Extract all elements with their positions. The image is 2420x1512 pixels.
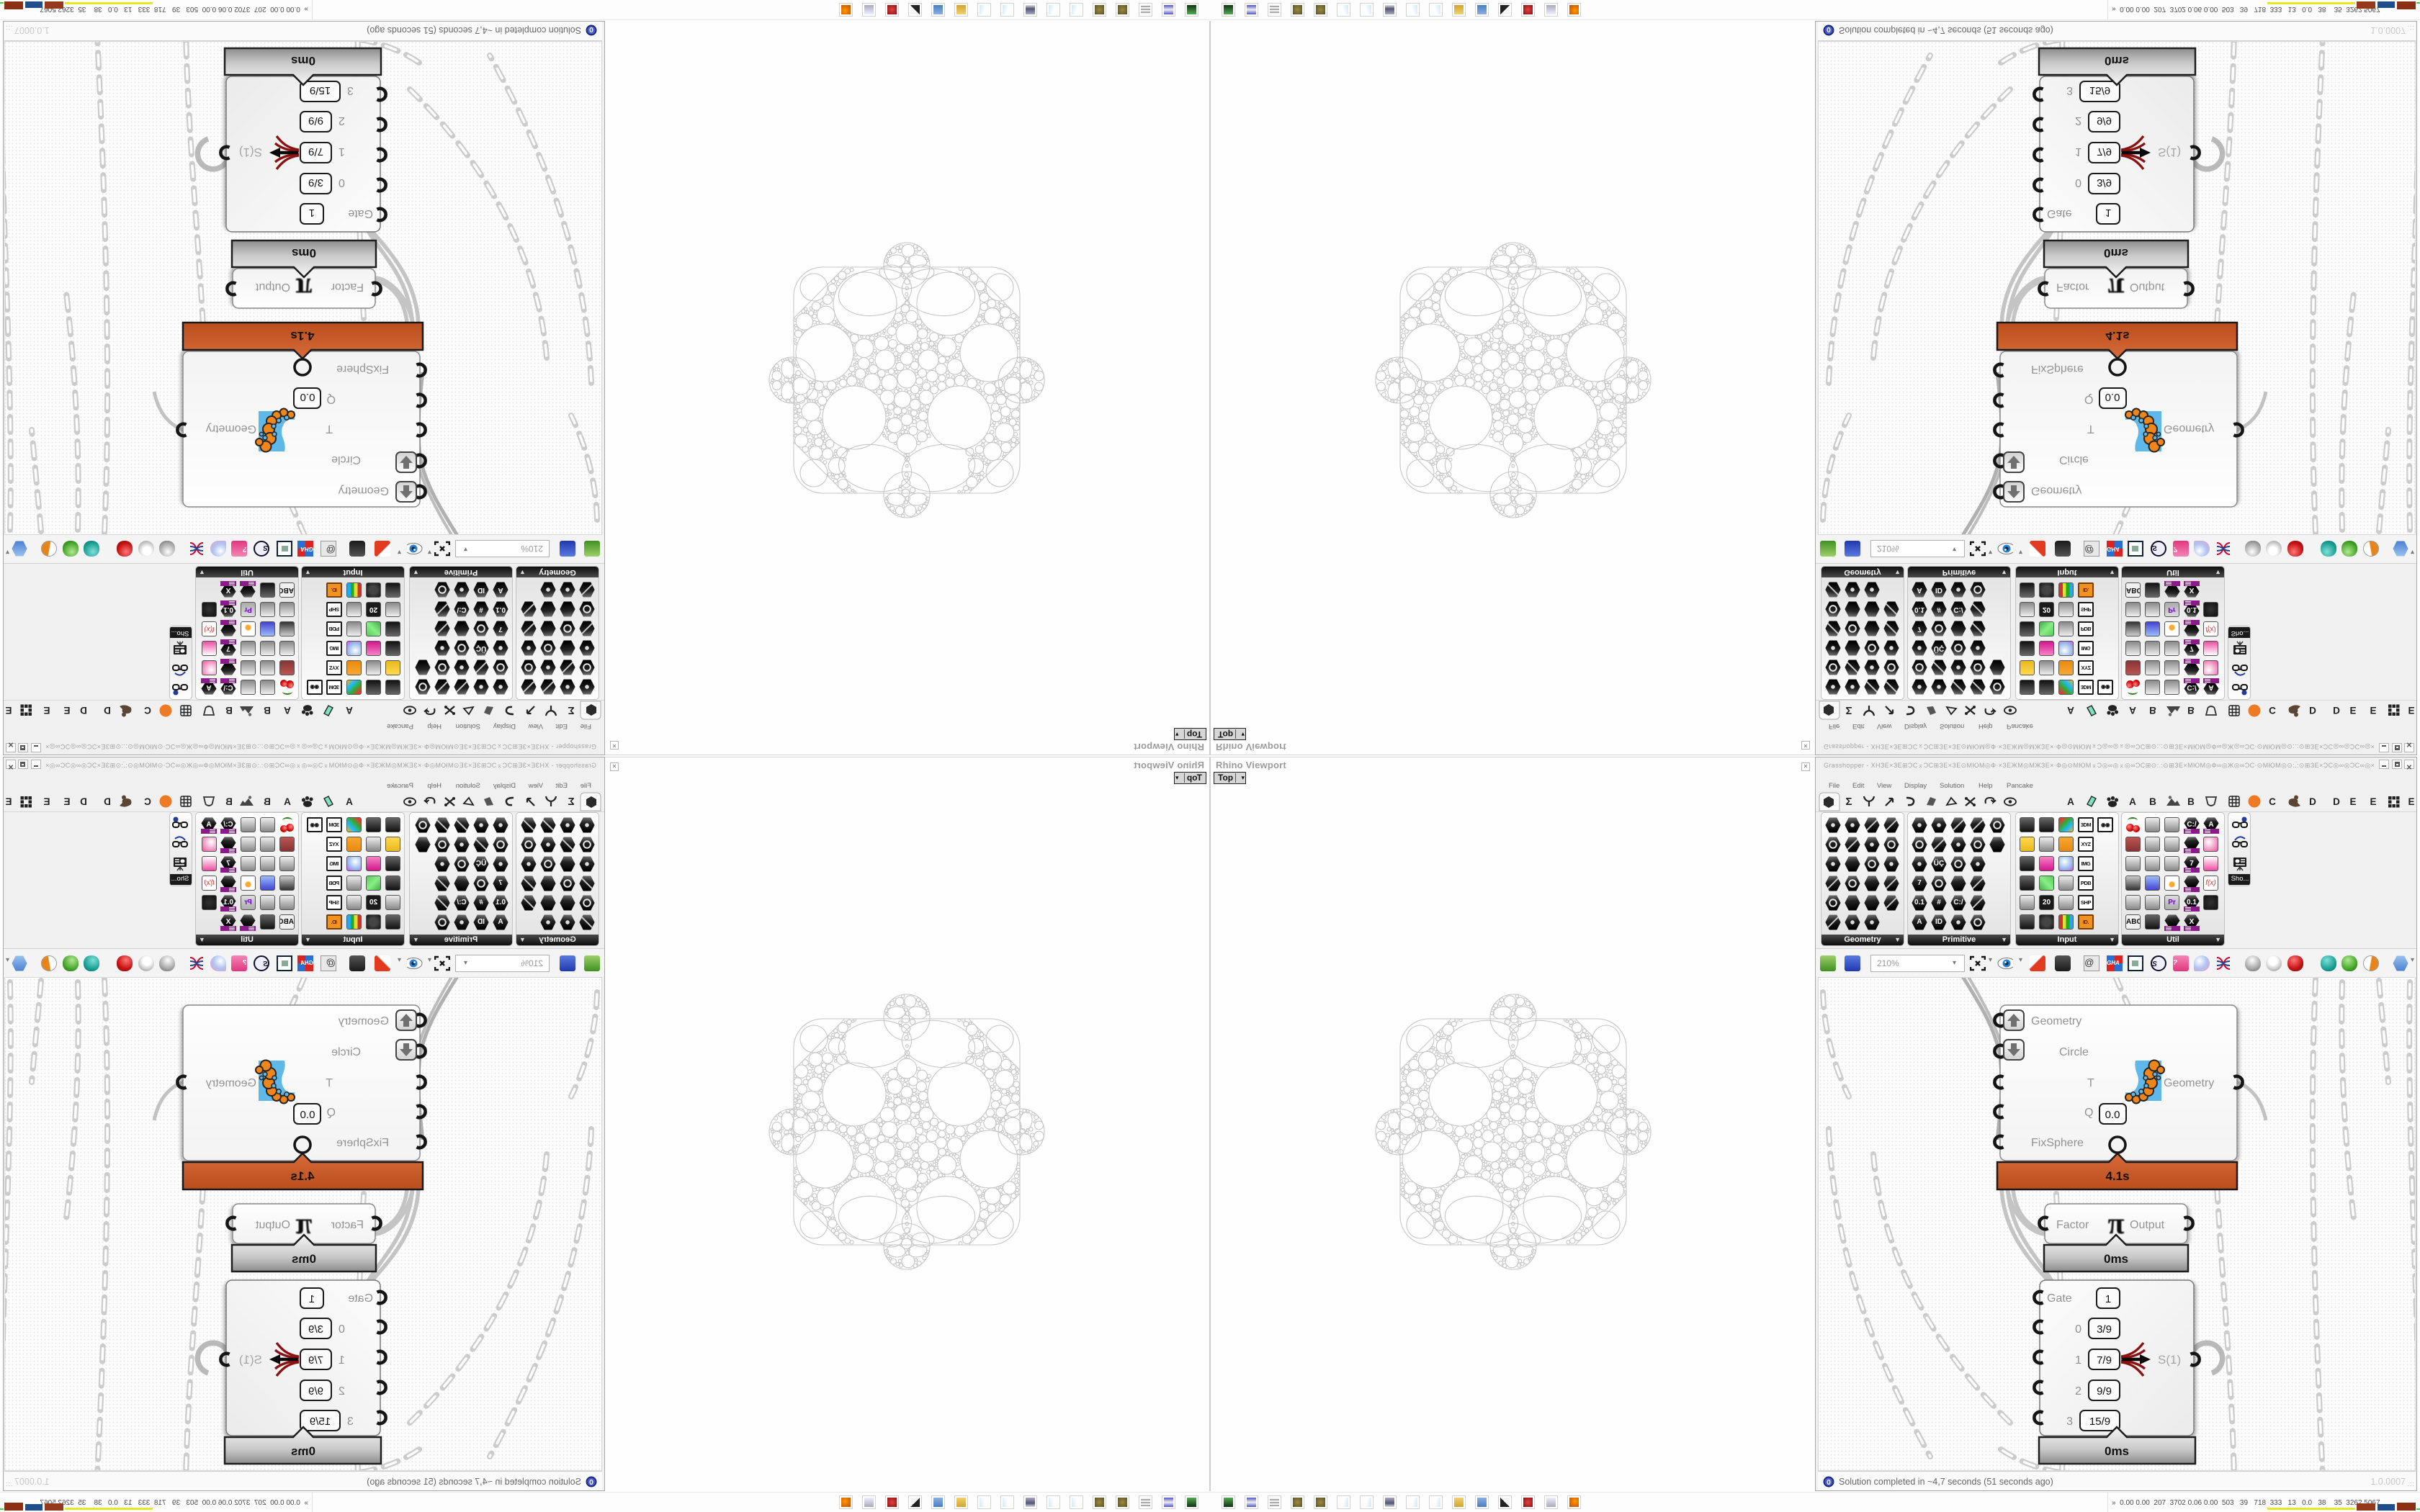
svg-text:Output: Output xyxy=(255,1219,290,1231)
svg-text:E: E xyxy=(2408,796,2414,807)
svg-text:1: 1 xyxy=(309,207,315,219)
svg-text:A: A xyxy=(2129,796,2136,807)
svg-text:1: 1 xyxy=(2105,207,2111,219)
svg-text:Geometry: Geometry xyxy=(206,1077,256,1089)
svg-text:C: C xyxy=(2269,705,2276,716)
svg-text:T: T xyxy=(2087,1077,2094,1089)
svg-text:B: B xyxy=(264,705,271,716)
svg-text:S(1): S(1) xyxy=(239,1353,262,1367)
svg-text:D: D xyxy=(104,705,111,716)
svg-text:E: E xyxy=(2408,705,2414,716)
svg-text:Σ: Σ xyxy=(1845,704,1852,716)
svg-text:3: 3 xyxy=(347,1416,354,1428)
svg-text:0.0: 0.0 xyxy=(300,391,315,403)
svg-text:0.0: 0.0 xyxy=(2105,391,2120,403)
svg-text:4.1s: 4.1s xyxy=(290,1169,314,1183)
svg-text:2: 2 xyxy=(339,114,345,127)
svg-text:Factor: Factor xyxy=(331,281,364,293)
svg-text:1: 1 xyxy=(2075,1354,2081,1367)
svg-text:Q: Q xyxy=(2084,1107,2093,1119)
svg-text:1: 1 xyxy=(339,1354,345,1367)
svg-text:3/9: 3/9 xyxy=(2097,1323,2112,1336)
svg-text:B: B xyxy=(2187,705,2195,716)
svg-text:0ms: 0ms xyxy=(291,1444,315,1458)
svg-text:9/9: 9/9 xyxy=(2097,1385,2112,1398)
svg-text:Geometry: Geometry xyxy=(339,1015,389,1027)
svg-text:A: A xyxy=(284,796,291,807)
svg-text:Geometry: Geometry xyxy=(339,485,389,497)
svg-text:3/9: 3/9 xyxy=(308,176,323,189)
svg-text:3: 3 xyxy=(347,84,354,96)
svg-text:Circle: Circle xyxy=(331,1046,361,1058)
svg-text:0: 0 xyxy=(339,176,345,189)
svg-text:Factor: Factor xyxy=(2056,1219,2089,1231)
svg-text:D: D xyxy=(2309,796,2316,807)
svg-text:S(1): S(1) xyxy=(239,145,262,159)
svg-text:9/9: 9/9 xyxy=(308,114,323,127)
svg-text:4.1s: 4.1s xyxy=(2105,1169,2129,1183)
svg-text:Geometry: Geometry xyxy=(206,423,256,435)
svg-text:9/9: 9/9 xyxy=(2097,114,2112,127)
svg-text:0ms: 0ms xyxy=(2104,1252,2128,1266)
svg-text:Geometry: Geometry xyxy=(2164,423,2214,435)
svg-text:9/9: 9/9 xyxy=(308,1385,323,1398)
svg-text:A: A xyxy=(346,796,353,807)
svg-text:Circle: Circle xyxy=(2059,454,2089,466)
svg-text:1: 1 xyxy=(2105,1293,2111,1305)
svg-text:15/9: 15/9 xyxy=(310,1416,331,1428)
svg-text:Gate: Gate xyxy=(2047,1292,2072,1305)
svg-text:Q: Q xyxy=(2084,393,2093,405)
svg-text:T: T xyxy=(326,1077,333,1089)
svg-text:E: E xyxy=(5,796,12,807)
svg-text:E: E xyxy=(43,705,50,716)
svg-text:E: E xyxy=(2349,705,2356,716)
svg-text:A: A xyxy=(2129,705,2136,716)
svg-text:Σ: Σ xyxy=(568,796,574,808)
svg-text:7/9: 7/9 xyxy=(308,1354,323,1367)
svg-text:15/9: 15/9 xyxy=(310,84,331,96)
svg-text:Q: Q xyxy=(327,393,336,405)
svg-text:D: D xyxy=(2333,796,2340,807)
svg-text:Geometry: Geometry xyxy=(2164,1077,2214,1089)
svg-text:E: E xyxy=(2370,705,2376,716)
svg-text:15/9: 15/9 xyxy=(2089,1416,2110,1428)
svg-text:0.0: 0.0 xyxy=(2105,1109,2120,1121)
svg-text:Gate: Gate xyxy=(348,207,373,220)
svg-text:0ms: 0ms xyxy=(2105,1444,2129,1458)
svg-text:Σ: Σ xyxy=(568,704,574,716)
svg-text:B: B xyxy=(2149,705,2156,716)
svg-text:FixSphere: FixSphere xyxy=(336,1137,389,1149)
svg-text:C: C xyxy=(2269,796,2276,807)
svg-text:Gate: Gate xyxy=(348,1292,373,1305)
svg-text:T: T xyxy=(326,423,333,435)
svg-text:4.1s: 4.1s xyxy=(2105,329,2129,343)
svg-text:2: 2 xyxy=(2075,1385,2081,1398)
svg-text:0: 0 xyxy=(1827,1479,1831,1487)
svg-text:2: 2 xyxy=(2075,114,2081,127)
svg-text:D: D xyxy=(80,705,87,716)
svg-text:Gate: Gate xyxy=(2047,207,2072,220)
svg-text:0ms: 0ms xyxy=(291,54,315,68)
svg-text:3/9: 3/9 xyxy=(308,1323,323,1336)
svg-text:Output: Output xyxy=(2130,1219,2165,1231)
svg-text:D: D xyxy=(2333,705,2340,716)
svg-text:C: C xyxy=(144,796,151,807)
svg-text:2: 2 xyxy=(339,1385,345,1398)
svg-text:0: 0 xyxy=(589,1479,593,1487)
svg-text:E: E xyxy=(63,796,70,807)
svg-text:3/9: 3/9 xyxy=(2097,176,2112,189)
svg-text:0: 0 xyxy=(1827,25,1831,33)
svg-text:3: 3 xyxy=(2066,1416,2073,1428)
svg-text:0ms: 0ms xyxy=(292,246,316,260)
svg-text:0: 0 xyxy=(2075,1323,2081,1336)
svg-text:Factor: Factor xyxy=(331,1219,364,1231)
svg-text:E: E xyxy=(43,796,50,807)
svg-text:Circle: Circle xyxy=(2059,1046,2089,1058)
svg-text:A: A xyxy=(2067,705,2074,716)
svg-text:B: B xyxy=(264,796,271,807)
svg-text:Output: Output xyxy=(2130,281,2165,293)
svg-text:B: B xyxy=(2149,796,2156,807)
svg-text:Circle: Circle xyxy=(331,454,361,466)
svg-text:0: 0 xyxy=(589,25,593,33)
svg-text:E: E xyxy=(2370,796,2376,807)
svg-text:S(1): S(1) xyxy=(2158,145,2181,159)
svg-text:B: B xyxy=(225,796,233,807)
svg-text:E: E xyxy=(5,705,12,716)
svg-text:A: A xyxy=(284,705,291,716)
svg-text:Geometry: Geometry xyxy=(2031,1015,2081,1027)
svg-text:B: B xyxy=(225,705,233,716)
svg-text:Q: Q xyxy=(327,1107,336,1119)
svg-text:0.0: 0.0 xyxy=(300,1109,315,1121)
svg-text:A: A xyxy=(2067,796,2074,807)
svg-text:7/9: 7/9 xyxy=(2097,145,2112,158)
svg-text:Factor: Factor xyxy=(2056,281,2089,293)
svg-text:0: 0 xyxy=(339,1323,345,1336)
svg-text:E: E xyxy=(2349,796,2356,807)
svg-text:1: 1 xyxy=(339,145,345,158)
svg-text:1: 1 xyxy=(309,1293,315,1305)
svg-text:4.1s: 4.1s xyxy=(290,329,314,343)
svg-text:0: 0 xyxy=(2075,176,2081,189)
svg-text:A: A xyxy=(346,705,353,716)
svg-text:7/9: 7/9 xyxy=(2097,1354,2112,1367)
svg-text:0ms: 0ms xyxy=(292,1252,316,1266)
svg-text:15/9: 15/9 xyxy=(2089,84,2110,96)
svg-text:FixSphere: FixSphere xyxy=(2031,363,2084,375)
svg-text:T: T xyxy=(2087,423,2094,435)
svg-text:3: 3 xyxy=(2066,84,2073,96)
svg-text:0ms: 0ms xyxy=(2105,54,2129,68)
svg-text:Geometry: Geometry xyxy=(2031,485,2081,497)
svg-text:D: D xyxy=(80,796,87,807)
svg-text:Output: Output xyxy=(255,281,290,293)
svg-text:7/9: 7/9 xyxy=(308,145,323,158)
svg-text:C: C xyxy=(144,705,151,716)
svg-text:0ms: 0ms xyxy=(2104,246,2128,260)
svg-text:D: D xyxy=(104,796,111,807)
svg-text:Σ: Σ xyxy=(1845,796,1852,808)
svg-text:1: 1 xyxy=(2075,145,2081,158)
svg-text:B: B xyxy=(2187,796,2195,807)
svg-text:FixSphere: FixSphere xyxy=(336,363,389,375)
svg-text:D: D xyxy=(2309,705,2316,716)
svg-text:FixSphere: FixSphere xyxy=(2031,1137,2084,1149)
svg-text:E: E xyxy=(63,705,70,716)
svg-text:S(1): S(1) xyxy=(2158,1353,2181,1367)
